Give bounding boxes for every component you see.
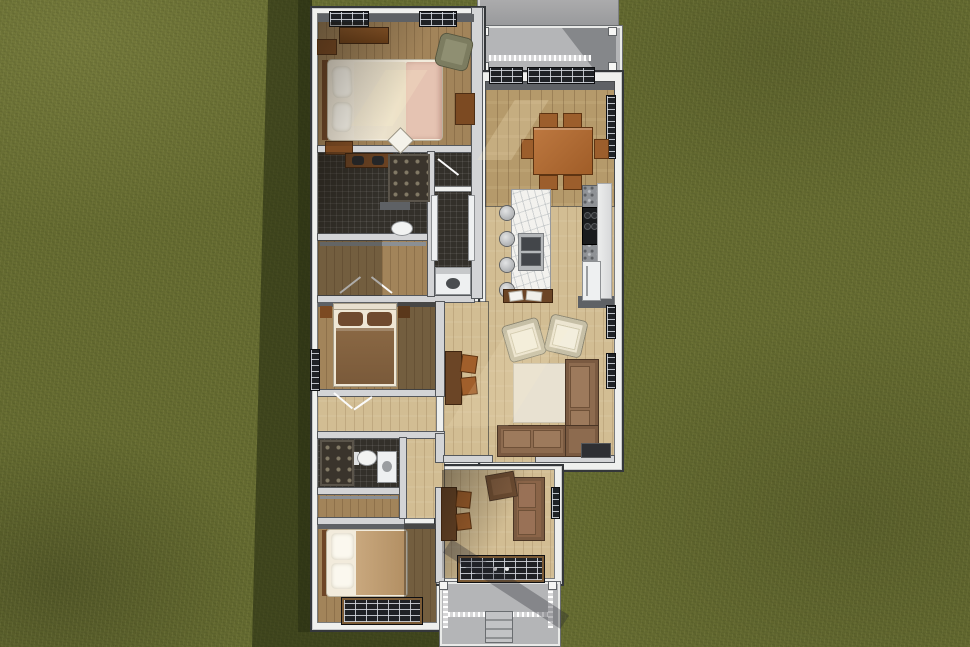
bathroom-2-vanity — [378, 452, 396, 482]
wall — [436, 302, 444, 396]
living-window — [607, 354, 615, 388]
burner — [592, 224, 597, 229]
dining-table — [534, 128, 592, 174]
barstool — [500, 206, 514, 220]
island-sink-unit — [519, 234, 543, 270]
washer-control-panel — [436, 268, 470, 274]
den-side-window — [552, 488, 559, 518]
front-porch-railing — [489, 55, 591, 61]
porch-post — [549, 582, 556, 589]
dining-side-window — [607, 96, 615, 158]
washer-door — [446, 278, 460, 289]
dining-chair — [564, 176, 581, 189]
porch-post — [609, 63, 616, 70]
nightstand — [320, 306, 332, 318]
dining-chair — [595, 140, 608, 158]
floor-plan-scene — [0, 0, 970, 647]
doormat — [582, 444, 610, 457]
driveway — [478, 0, 618, 27]
laundry-counter — [432, 196, 437, 260]
closet-shelf — [320, 496, 398, 499]
console-books — [527, 291, 542, 300]
room-shadow — [318, 152, 428, 234]
wall — [318, 488, 400, 494]
sofa-cushion — [503, 430, 531, 448]
wall — [318, 432, 444, 438]
sink-basin — [521, 253, 541, 266]
rear-porch-railing — [443, 588, 448, 628]
fridge-handle — [586, 266, 588, 296]
wall — [436, 434, 444, 462]
burner — [592, 213, 597, 218]
desk-chair — [461, 355, 477, 373]
hallway-1-floor — [318, 396, 436, 432]
bed-tan-blanket — [356, 531, 406, 595]
bedroom-3-window — [342, 598, 422, 624]
dining-window — [528, 68, 594, 83]
bed-pillow — [367, 312, 392, 326]
living-window — [607, 306, 615, 338]
bed-pillow — [338, 312, 363, 326]
dining-chair — [564, 114, 581, 127]
bed-blanket — [336, 328, 394, 384]
barstool — [500, 258, 514, 272]
porch-steps — [486, 612, 512, 642]
bed-pillow — [331, 533, 354, 560]
barstool — [500, 232, 514, 246]
door-handle — [505, 567, 509, 571]
dining-chair — [540, 176, 557, 189]
burner — [585, 213, 590, 218]
console-books — [510, 291, 523, 301]
dining-window — [490, 68, 522, 83]
wall-desk — [446, 352, 461, 404]
porch-post — [609, 28, 616, 35]
vanity-basin — [382, 461, 392, 472]
wall — [444, 456, 492, 462]
toilet — [358, 451, 376, 465]
rear-porch-railing — [448, 612, 486, 617]
refrigerator — [583, 262, 600, 300]
wall-face — [486, 82, 614, 90]
washer — [436, 268, 470, 294]
bathroom-2-shower — [322, 442, 352, 484]
bed-pillow — [331, 563, 354, 589]
room-shadow — [318, 240, 382, 296]
sink-basin — [521, 237, 541, 251]
laundry-counter — [469, 196, 474, 260]
porch-post — [440, 582, 447, 589]
dining-chair — [540, 114, 557, 127]
sectional-sofa-bottom — [498, 426, 566, 456]
room-shadow — [318, 22, 474, 146]
bedroom-2-window — [311, 350, 319, 390]
room-shadow — [398, 302, 436, 390]
wall — [400, 438, 406, 518]
porch-roof-shade — [481, 28, 616, 70]
sofa-cushion — [570, 366, 590, 408]
sofa-cushion — [533, 430, 561, 448]
burner — [585, 224, 590, 229]
